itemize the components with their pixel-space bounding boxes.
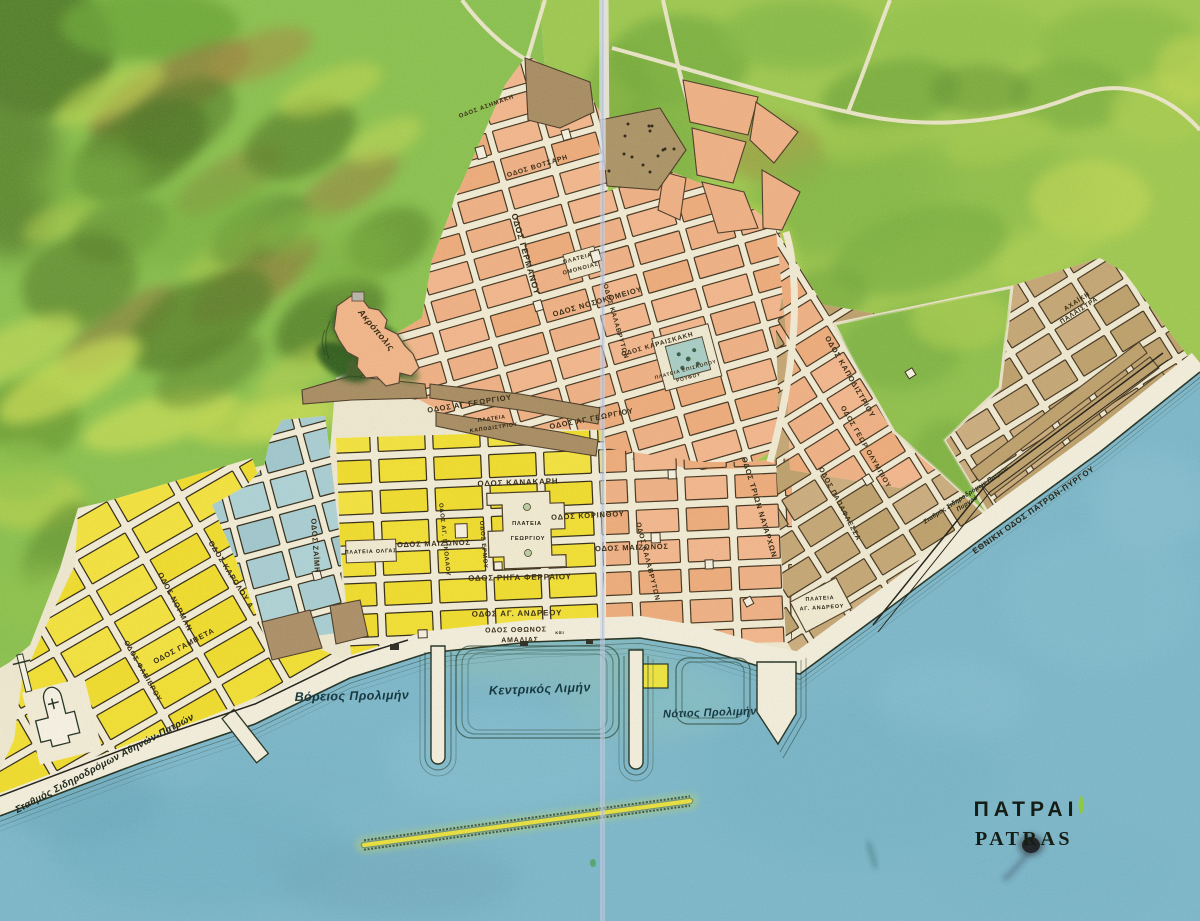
svg-text:ΠΛΑΤΕΙΑ: ΠΛΑΤΕΙΑ — [512, 521, 542, 527]
svg-text:ΓΕΩΡΓΙΟΥ: ΓΕΩΡΓΙΟΥ — [511, 536, 546, 542]
svg-text:PATRAS: PATRAS — [975, 828, 1073, 850]
svg-text:ΟΔΟΣ ΑΓ. ΑΝΔΡΕΟΥ: ΟΔΟΣ ΑΓ. ΑΝΔΡΕΟΥ — [472, 608, 563, 619]
svg-text:ΟΔΟΣ ΟΘΩΝΟΣ: ΟΔΟΣ ΟΘΩΝΟΣ — [485, 626, 547, 634]
svg-text:ΠΑΤΡΑΙ: ΠΑΤΡΑΙ — [974, 798, 1079, 821]
svg-text:και: και — [555, 630, 565, 636]
svg-text:ΑΜΑΛΙΑΣ: ΑΜΑΛΙΑΣ — [501, 637, 539, 645]
svg-text:ΟΔΟΣ ΡΗΓΑ ΦΕΡΡΑΙΟΥ: ΟΔΟΣ ΡΗΓΑ ΦΕΡΡΑΙΟΥ — [468, 572, 572, 583]
svg-text:Βόρειος Προλιμήν: Βόρειος Προλιμήν — [295, 688, 410, 704]
